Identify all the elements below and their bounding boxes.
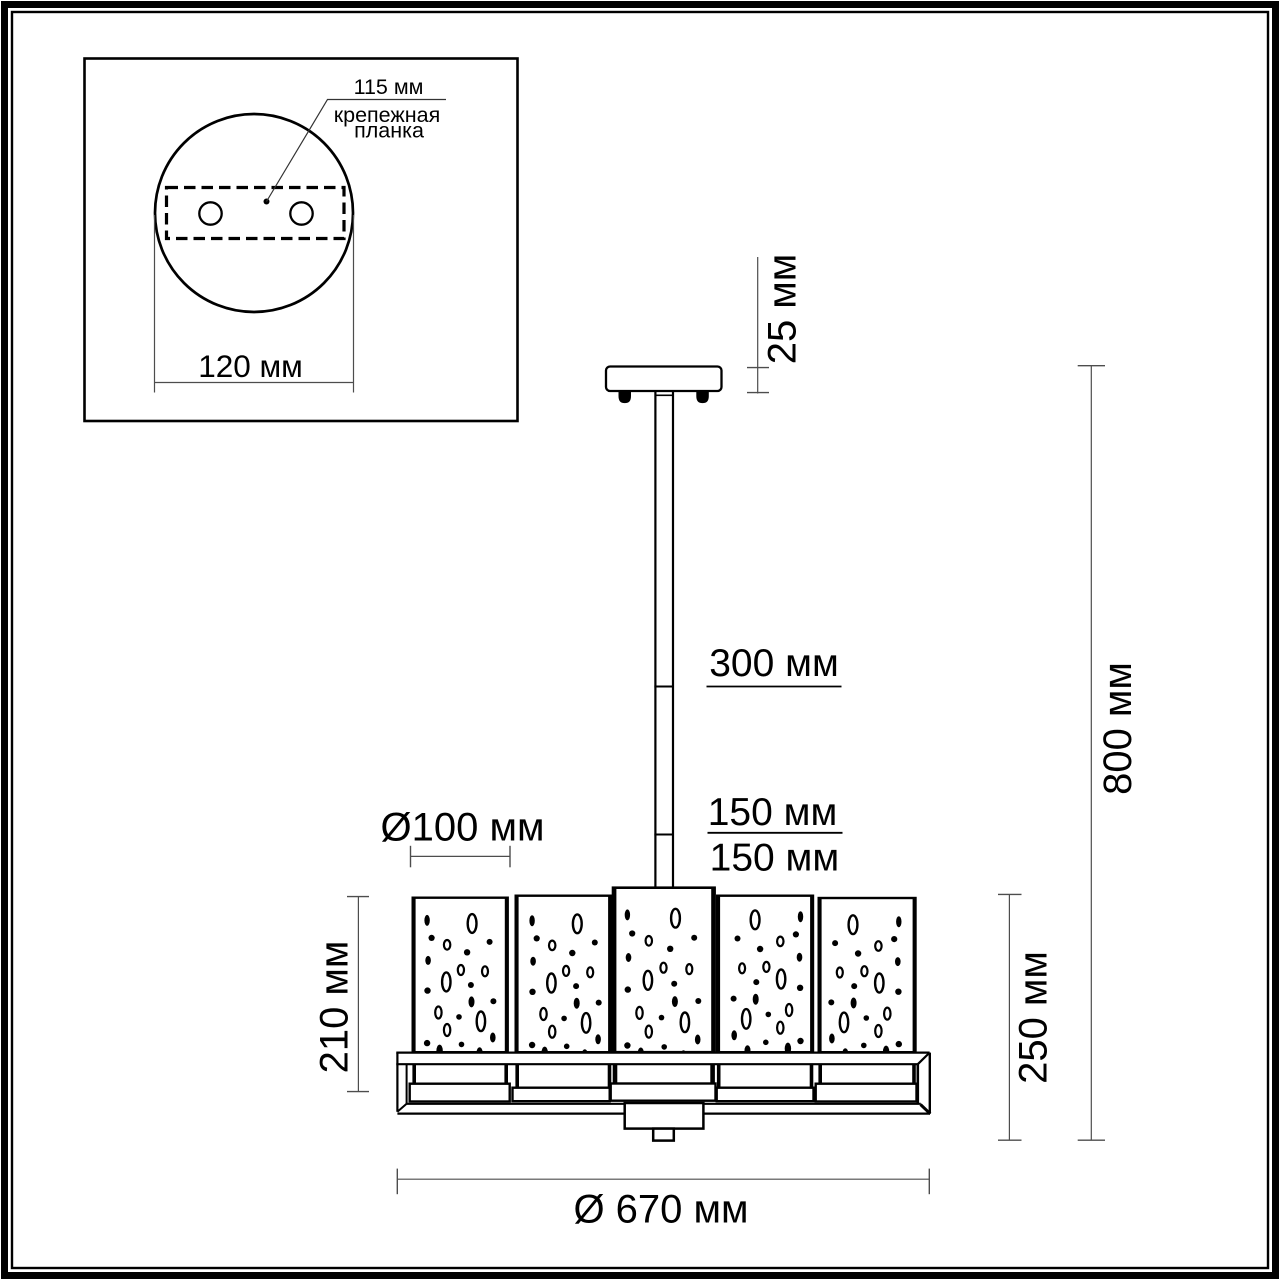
svg-text:210 мм: 210 мм — [313, 941, 357, 1074]
svg-text:115 мм: 115 мм — [354, 75, 424, 99]
svg-text:300 мм: 300 мм — [709, 642, 839, 685]
svg-text:120 мм: 120 мм — [198, 348, 303, 384]
svg-text:800 мм: 800 мм — [1096, 662, 1140, 795]
svg-text:250 мм: 250 мм — [1012, 951, 1056, 1084]
svg-text:крепежнаяпланка: крепежнаяпланка — [334, 103, 441, 143]
svg-text:150 мм: 150 мм — [708, 791, 838, 834]
svg-text:25 мм: 25 мм — [761, 254, 805, 365]
svg-text:Ø 670 мм: Ø 670 мм — [573, 1188, 748, 1232]
svg-text:150 мм: 150 мм — [710, 836, 840, 879]
svg-text:Ø100 мм: Ø100 мм — [381, 806, 545, 850]
